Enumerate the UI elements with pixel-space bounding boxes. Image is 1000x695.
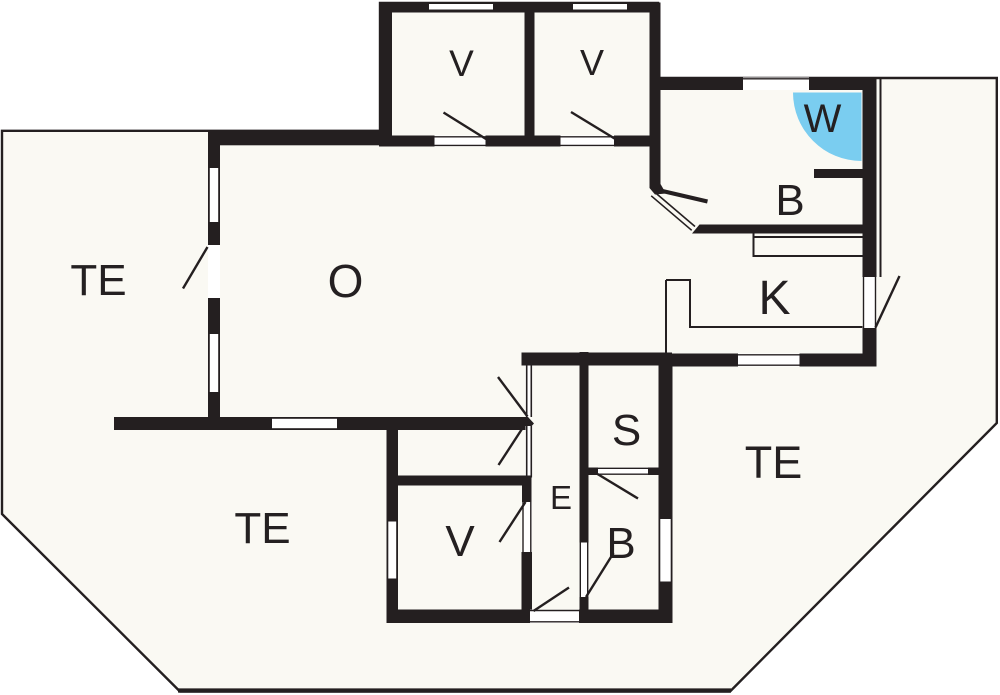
svg-text:W: W: [804, 97, 842, 141]
svg-text:B: B: [606, 519, 635, 568]
svg-text:TE: TE: [234, 504, 290, 553]
svg-text:TE: TE: [70, 256, 126, 305]
svg-text:B: B: [775, 176, 804, 225]
svg-text:V: V: [449, 43, 474, 84]
svg-text:S: S: [612, 406, 641, 455]
svg-text:V: V: [445, 517, 475, 566]
svg-text:O: O: [328, 255, 364, 307]
svg-text:K: K: [758, 272, 790, 325]
svg-text:TE: TE: [745, 437, 803, 488]
svg-text:E: E: [550, 479, 572, 516]
svg-text:V: V: [580, 42, 604, 83]
